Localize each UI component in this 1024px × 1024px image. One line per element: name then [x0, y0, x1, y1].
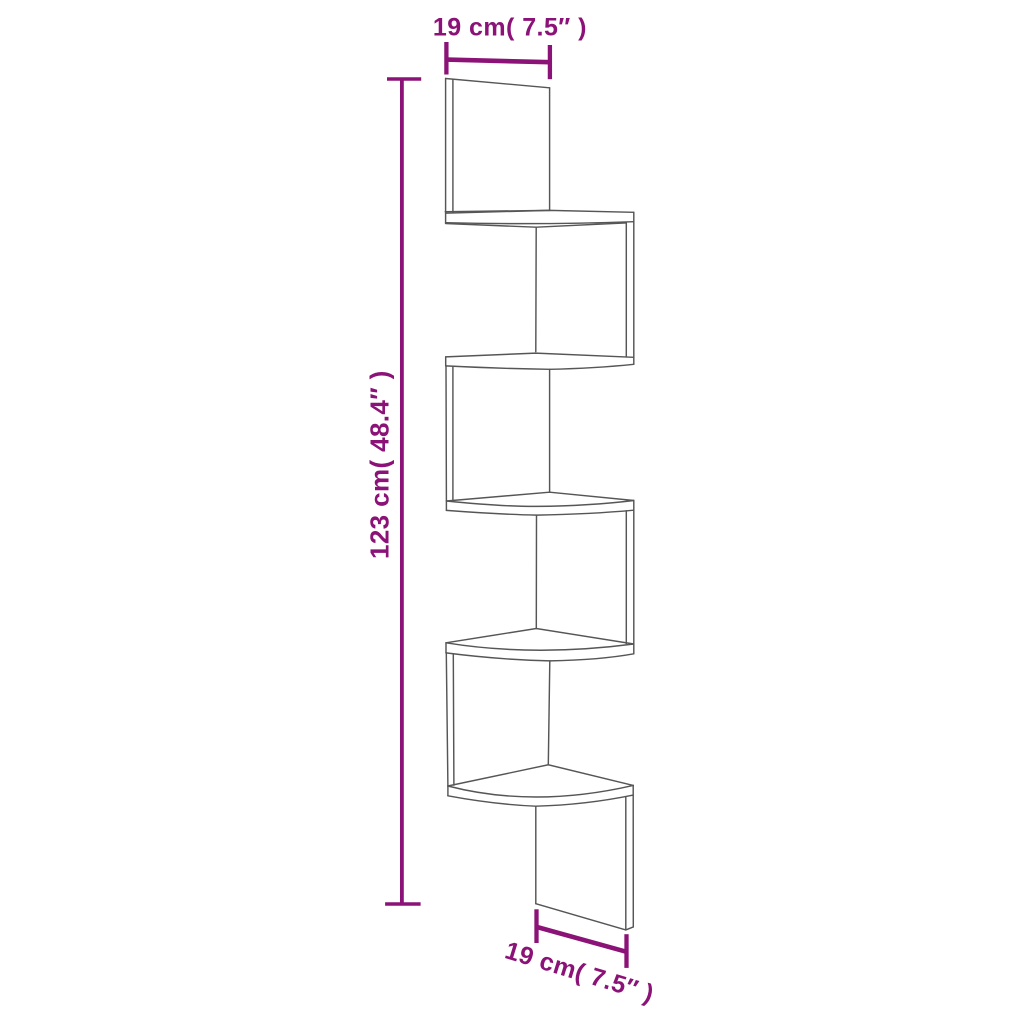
- svg-text:19 cm( 7.5″ ): 19 cm( 7.5″ ): [502, 936, 657, 1008]
- svg-text:123 cm( 48.4″ ): 123 cm( 48.4″ ): [365, 370, 395, 559]
- svg-text:19 cm( 7.5″ ): 19 cm( 7.5″ ): [433, 13, 587, 41]
